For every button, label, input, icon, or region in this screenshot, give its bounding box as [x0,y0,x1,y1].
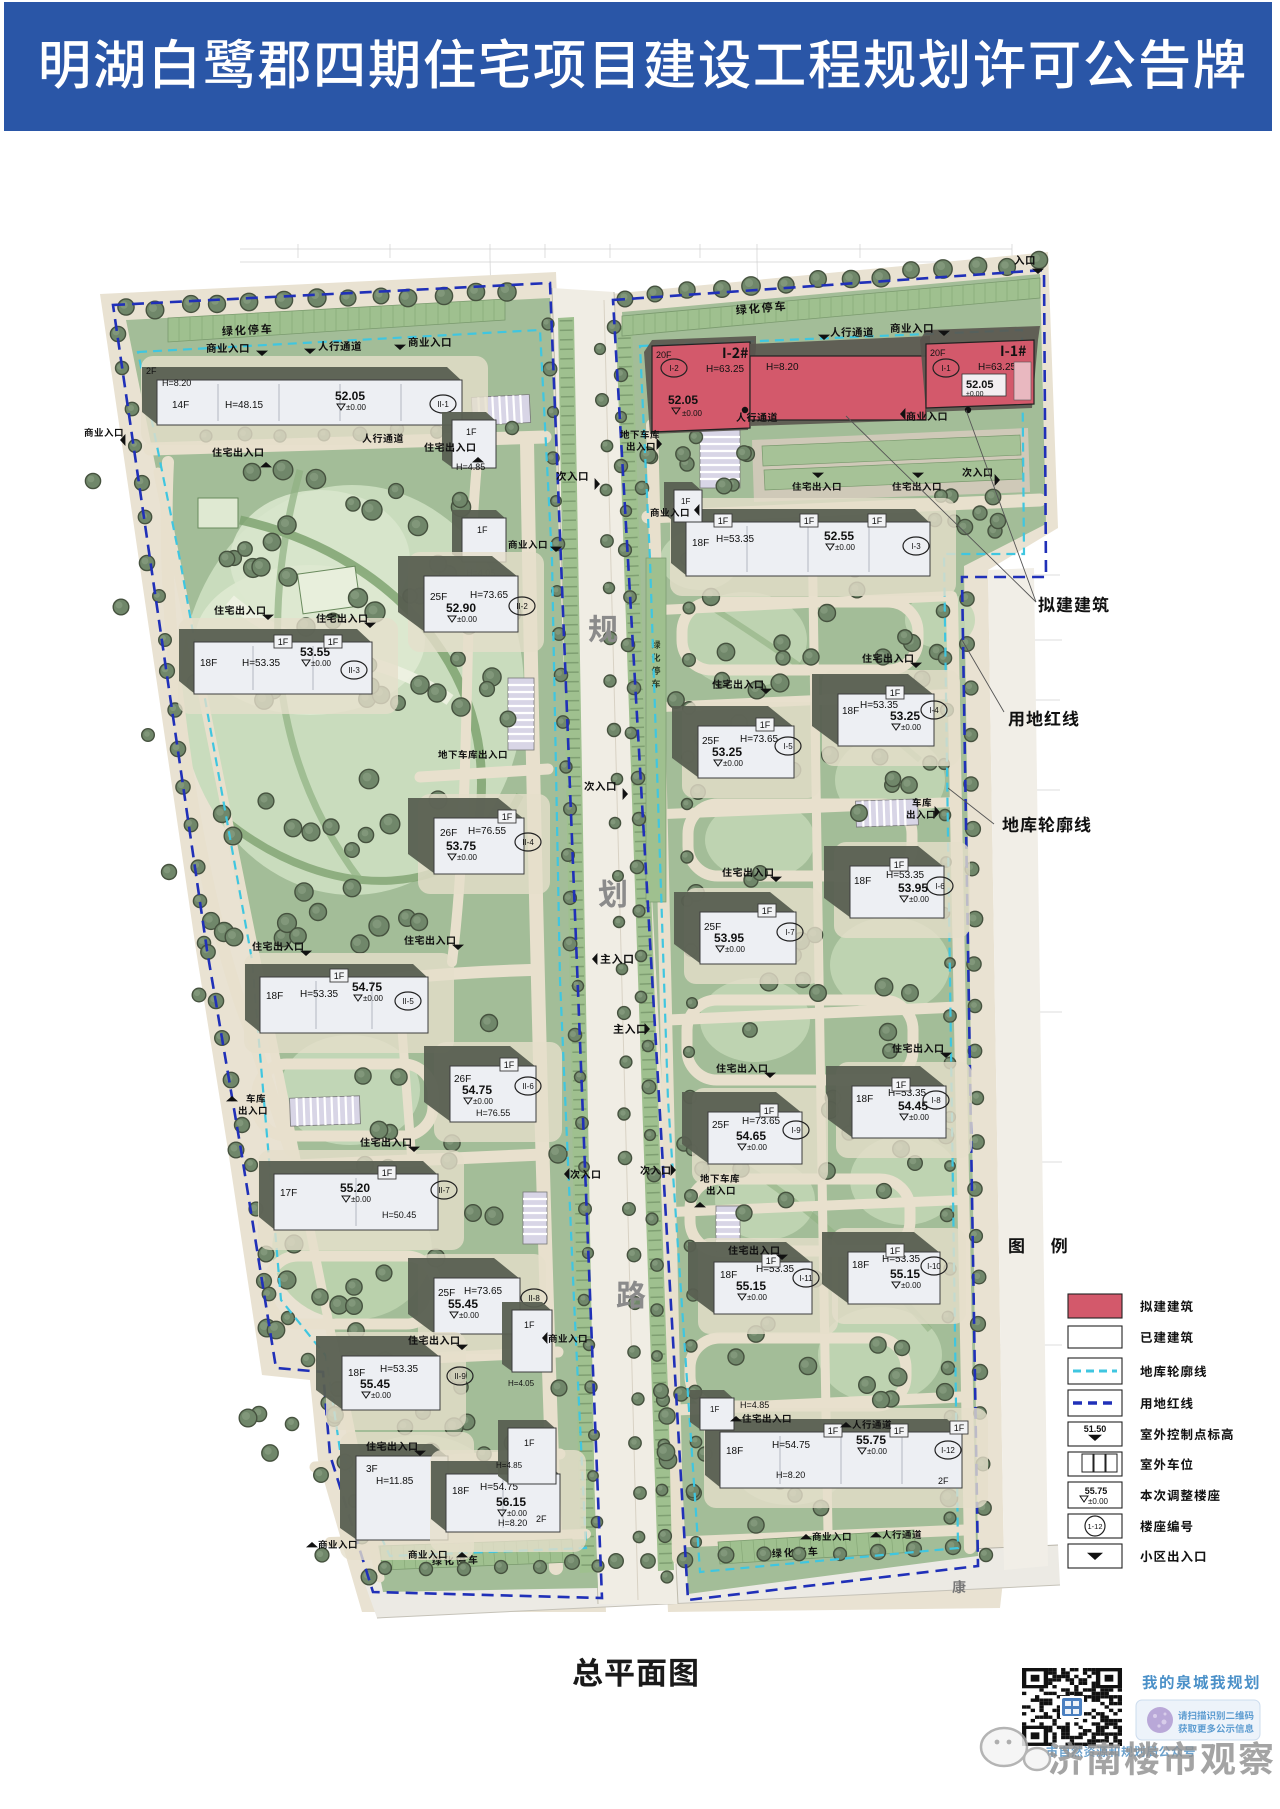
svg-text:±0.00: ±0.00 [457,615,478,624]
svg-text:H=53.35: H=53.35 [716,534,755,545]
svg-text:25F: 25F [430,592,447,603]
svg-text:H=76.55: H=76.55 [468,826,507,837]
svg-text:56.15: 56.15 [496,1495,526,1509]
svg-text:1F: 1F [524,1438,535,1448]
svg-text:1F: 1F [710,1405,719,1414]
svg-text:H=73.65: H=73.65 [740,734,779,745]
svg-text:±0.00: ±0.00 [507,1509,528,1518]
svg-text:1F: 1F [718,516,729,526]
svg-text:I-11: I-11 [799,1274,813,1283]
svg-text:±0.00: ±0.00 [311,659,332,668]
svg-text:I-3: I-3 [911,542,921,551]
svg-text:±0.00: ±0.00 [723,759,744,768]
svg-text:1F: 1F [896,1080,907,1090]
svg-text:I-8: I-8 [931,1096,941,1105]
svg-text:±0.00: ±0.00 [835,543,856,552]
svg-text:I-7: I-7 [785,928,795,937]
svg-text:1F: 1F [890,688,901,698]
svg-text:54.75: 54.75 [462,1083,492,1097]
svg-text:II-8: II-8 [528,1294,540,1303]
svg-text:H=48.15: H=48.15 [225,400,264,411]
svg-text:18F: 18F [452,1486,469,1497]
svg-text:±0.00: ±0.00 [909,895,930,904]
svg-text:55.20: 55.20 [340,1181,370,1195]
svg-text:1F: 1F [524,1320,535,1330]
svg-text:1F: 1F [894,860,905,870]
svg-text:20F: 20F [930,348,946,358]
svg-text:H=8.20: H=8.20 [766,362,799,373]
svg-text:II-1: II-1 [437,400,449,409]
svg-text:1F: 1F [334,971,345,981]
svg-text:H=73.65: H=73.65 [742,1116,781,1127]
svg-text:53.95: 53.95 [898,881,928,895]
svg-text:±0.00: ±0.00 [909,1113,930,1122]
svg-text:17F: 17F [280,1188,297,1199]
svg-text:52.05: 52.05 [335,389,365,403]
svg-text:2F: 2F [146,366,157,376]
svg-text:18F: 18F [842,706,859,717]
svg-text:1F: 1F [872,516,883,526]
svg-text:1F: 1F [764,1106,775,1116]
svg-text:±0.00: ±0.00 [457,853,478,862]
svg-text:1F: 1F [828,1426,839,1436]
svg-text:18F: 18F [200,658,217,669]
svg-text:53.95: 53.95 [714,931,744,945]
svg-text:±0.00: ±0.00 [346,403,367,412]
svg-text:52.05: 52.05 [668,393,698,407]
svg-text:±0.00: ±0.00 [966,391,984,398]
svg-text:55.45: 55.45 [360,1377,390,1391]
svg-text:1F: 1F [890,1246,901,1256]
svg-text:H=53.35: H=53.35 [380,1364,419,1375]
svg-text:H=54.75: H=54.75 [772,1440,811,1451]
svg-text:H=53.35: H=53.35 [300,989,339,1000]
svg-text:II-7: II-7 [438,1186,450,1195]
svg-text:1F: 1F [382,1168,393,1178]
svg-text:H=4.05: H=4.05 [508,1379,535,1388]
svg-text:±0.00: ±0.00 [473,1097,494,1106]
svg-text:I-2: I-2 [669,364,679,373]
svg-text:H=4.85: H=4.85 [740,1400,769,1410]
svg-text:H=63.25: H=63.25 [706,364,745,375]
svg-text:1F: 1F [954,1423,965,1433]
svg-text:±0.00: ±0.00 [867,1447,888,1456]
svg-text:±0.00: ±0.00 [725,945,746,954]
svg-text:1F: 1F [760,720,771,730]
svg-text:2F: 2F [536,1514,547,1524]
svg-text:I-12: I-12 [941,1446,955,1455]
svg-text:1F: 1F [766,1256,777,1266]
svg-text:H=8.20: H=8.20 [776,1470,805,1480]
svg-text:54.45: 54.45 [898,1099,928,1113]
svg-text:H=8.20: H=8.20 [498,1518,527,1528]
svg-text:52.55: 52.55 [824,529,854,543]
svg-text:1F: 1F [328,637,339,647]
svg-text:II-4: II-4 [522,838,534,847]
svg-text:1F: 1F [804,516,815,526]
svg-text:1-12: 1-12 [1087,1522,1102,1531]
svg-text:±0.00: ±0.00 [901,1281,922,1290]
svg-text:H=4.85: H=4.85 [456,462,485,472]
svg-text:II-2: II-2 [516,602,528,611]
svg-text:±0.00: ±0.00 [363,994,384,1003]
svg-text:1F: 1F [477,525,488,535]
svg-text:I-6: I-6 [935,882,945,891]
svg-text:1F: 1F [504,1060,515,1070]
svg-text:I-1: I-1 [941,364,951,373]
svg-text:1F: 1F [278,637,289,647]
svg-text:18F: 18F [856,1094,873,1105]
svg-text:±0.00: ±0.00 [351,1195,372,1204]
svg-text:H=76.55: H=76.55 [476,1108,510,1118]
svg-text:1F: 1F [681,497,690,506]
svg-text:55.75: 55.75 [1085,1486,1108,1496]
svg-text:H=63.25: H=63.25 [978,362,1017,373]
svg-text:±0.00: ±0.00 [682,409,703,418]
svg-text:±0.00: ±0.00 [459,1311,480,1320]
svg-text:I-4: I-4 [929,706,939,715]
svg-text:55.15: 55.15 [736,1279,766,1293]
svg-text:20F: 20F [656,350,672,360]
svg-text:26F: 26F [440,828,457,839]
svg-text:I-10: I-10 [927,1262,941,1271]
svg-text:14F: 14F [172,400,189,411]
svg-text:H=11.85: H=11.85 [376,1476,414,1487]
svg-text:52.90: 52.90 [446,601,476,615]
svg-text:±0.00: ±0.00 [901,723,922,732]
svg-text:2F: 2F [938,1476,949,1486]
svg-text:18F: 18F [266,991,283,1002]
svg-text:51.50: 51.50 [1084,1424,1107,1434]
svg-text:H=8.20: H=8.20 [162,378,191,388]
svg-text:1F: 1F [466,427,477,437]
svg-text:II-9: II-9 [454,1372,466,1381]
svg-text:H=73.65: H=73.65 [464,1286,503,1297]
svg-text:1F: 1F [894,1426,905,1436]
svg-text:II-6: II-6 [522,1082,534,1091]
svg-text:25F: 25F [712,1120,729,1131]
svg-text:18F: 18F [726,1446,743,1457]
svg-text:I-5: I-5 [783,742,793,751]
svg-text:H=4.85: H=4.85 [496,1461,523,1470]
svg-text:18F: 18F [720,1270,737,1281]
svg-text:53.25: 53.25 [890,709,920,723]
svg-text:18F: 18F [692,538,709,549]
svg-text:53.25: 53.25 [712,745,742,759]
svg-text:I-9: I-9 [791,1126,801,1135]
svg-text:55.15: 55.15 [890,1267,920,1281]
svg-text:1F: 1F [502,812,513,822]
svg-text:H=53.35: H=53.35 [242,658,281,669]
svg-text:54.65: 54.65 [736,1129,766,1143]
svg-text:H=53.35: H=53.35 [886,870,925,881]
svg-text:1F: 1F [762,906,773,916]
svg-text:II-3: II-3 [348,666,360,675]
svg-text:±0.00: ±0.00 [747,1293,768,1302]
svg-text:18F: 18F [854,876,871,887]
svg-text:±0.00: ±0.00 [747,1143,768,1152]
svg-text:H=73.65: H=73.65 [470,590,509,601]
svg-text:3F: 3F [366,1464,378,1475]
svg-text:±0.00: ±0.00 [371,1391,392,1400]
svg-text:II-5: II-5 [402,997,414,1006]
svg-text:H=50.45: H=50.45 [382,1210,416,1220]
svg-text:18F: 18F [852,1260,869,1271]
svg-text:55.45: 55.45 [448,1297,478,1311]
svg-text:53.75: 53.75 [446,839,476,853]
svg-text:±0.00: ±0.00 [1088,1497,1109,1506]
svg-text:54.75: 54.75 [352,980,382,994]
svg-text:55.75: 55.75 [856,1433,886,1447]
svg-text:52.05: 52.05 [966,379,994,391]
